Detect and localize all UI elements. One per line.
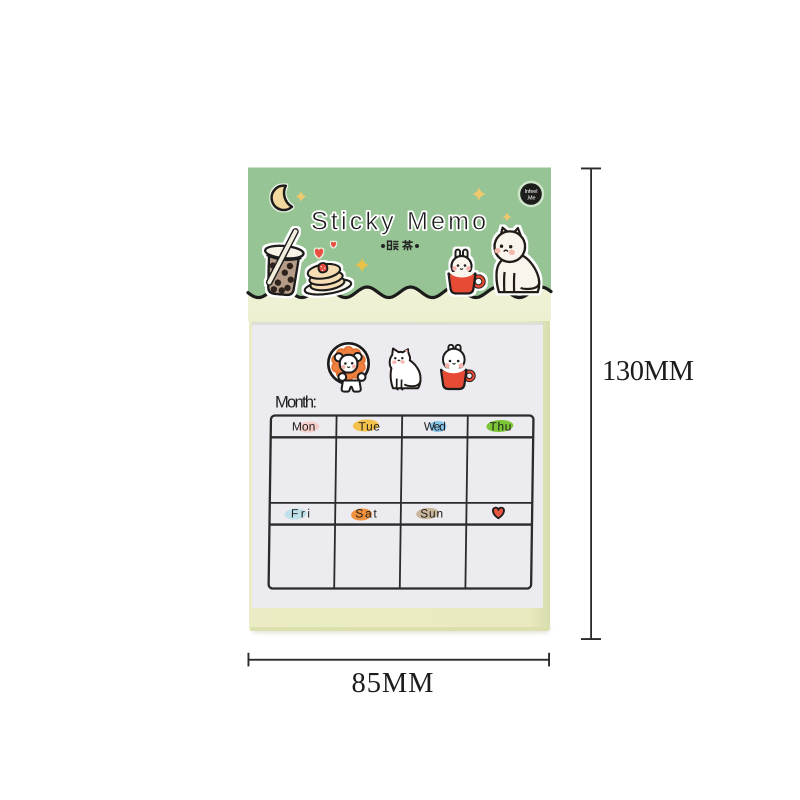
- svg-text:Sun: Sun: [420, 507, 443, 521]
- svg-text:Infeel: Infeel: [525, 189, 538, 195]
- svg-text:Fri: Fri: [291, 507, 310, 521]
- svg-text:Wed: Wed: [424, 420, 446, 434]
- svg-text:130MM: 130MM: [602, 356, 694, 387]
- svg-text:Sticky Memo: Sticky Memo: [311, 208, 489, 236]
- svg-text:Thu: Thu: [489, 420, 511, 434]
- svg-text:Sat: Sat: [355, 507, 377, 521]
- svg-text:85MM: 85MM: [352, 668, 434, 699]
- svg-text:.Me: .Me: [527, 196, 536, 202]
- svg-text:Tue: Tue: [358, 420, 380, 434]
- svg-text:Mon: Mon: [292, 420, 316, 434]
- svg-text:Month:: Month:: [275, 394, 318, 412]
